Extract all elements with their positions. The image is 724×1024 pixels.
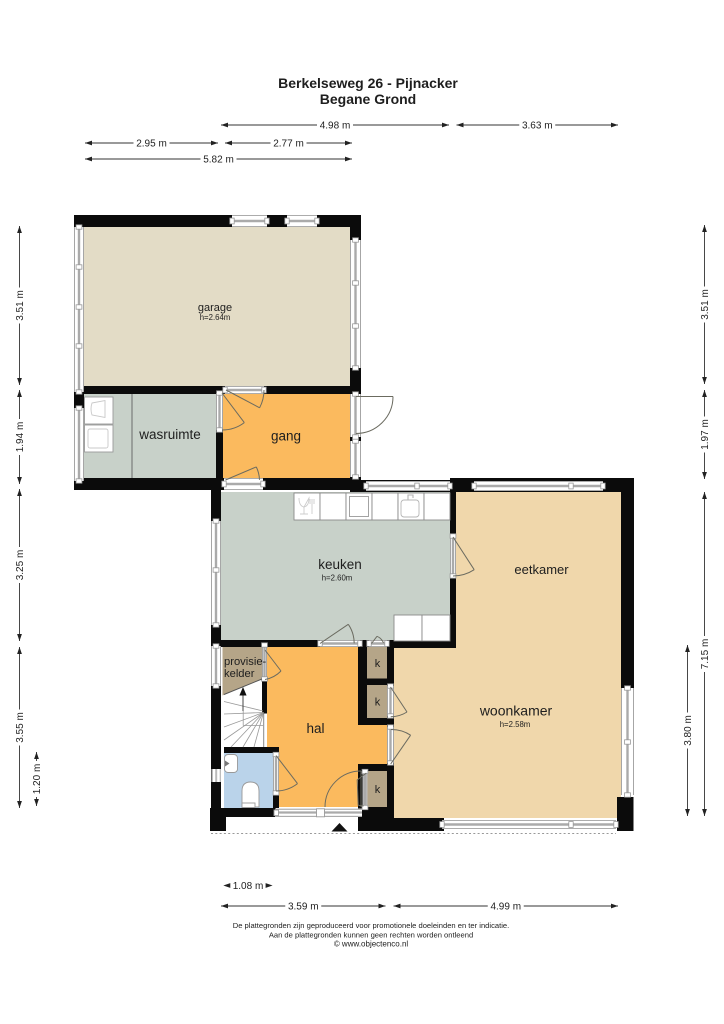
- svg-text:© www.objectenco.nl: © www.objectenco.nl: [334, 940, 409, 949]
- svg-text:5.82 m: 5.82 m: [203, 154, 234, 165]
- svg-text:k: k: [375, 697, 381, 709]
- svg-text:k: k: [375, 784, 381, 796]
- svg-text:De plattegronden zijn geproduc: De plattegronden zijn geproduceerd voor …: [233, 921, 510, 930]
- svg-text:kelder: kelder: [224, 668, 255, 680]
- svg-text:3.80 m: 3.80 m: [683, 715, 694, 746]
- svg-text:1.20 m: 1.20 m: [32, 764, 43, 795]
- svg-text:k: k: [375, 658, 381, 670]
- svg-text:h=2.58m: h=2.58m: [500, 720, 531, 729]
- svg-text:4.99 m: 4.99 m: [490, 901, 521, 912]
- svg-text:1.08 m: 1.08 m: [233, 881, 264, 892]
- svg-text:provisie-: provisie-: [224, 656, 267, 668]
- svg-text:hal: hal: [306, 721, 324, 736]
- svg-text:7.15 m: 7.15 m: [700, 639, 711, 670]
- svg-text:woonkamer: woonkamer: [479, 703, 553, 719]
- svg-text:1.97 m: 1.97 m: [700, 419, 711, 450]
- svg-text:keuken: keuken: [318, 557, 362, 572]
- svg-text:3.63 m: 3.63 m: [522, 120, 553, 131]
- svg-text:Berkelseweg 26 - Pijnacker: Berkelseweg 26 - Pijnacker: [278, 75, 458, 91]
- svg-text:3.59 m: 3.59 m: [288, 901, 319, 912]
- svg-text:2.77 m: 2.77 m: [273, 138, 304, 149]
- svg-text:2.95 m: 2.95 m: [136, 138, 167, 149]
- svg-text:gang: gang: [271, 429, 301, 444]
- svg-text:3.25 m: 3.25 m: [15, 550, 26, 581]
- svg-text:h=2.64m: h=2.64m: [200, 313, 231, 322]
- svg-text:wasruimte: wasruimte: [138, 427, 201, 442]
- svg-text:1.94 m: 1.94 m: [15, 422, 26, 453]
- svg-text:Begane Grond: Begane Grond: [320, 91, 416, 107]
- svg-text:3.51 m: 3.51 m: [700, 289, 711, 320]
- svg-text:h=2.60m: h=2.60m: [322, 574, 353, 583]
- svg-text:4.98 m: 4.98 m: [320, 120, 351, 131]
- svg-text:3.51 m: 3.51 m: [15, 290, 26, 321]
- svg-text:Aan de plattegronden kunnen ge: Aan de plattegronden kunnen geen rechten…: [269, 931, 473, 940]
- svg-text:3.55 m: 3.55 m: [15, 712, 26, 743]
- svg-text:eetkamer: eetkamer: [514, 562, 569, 577]
